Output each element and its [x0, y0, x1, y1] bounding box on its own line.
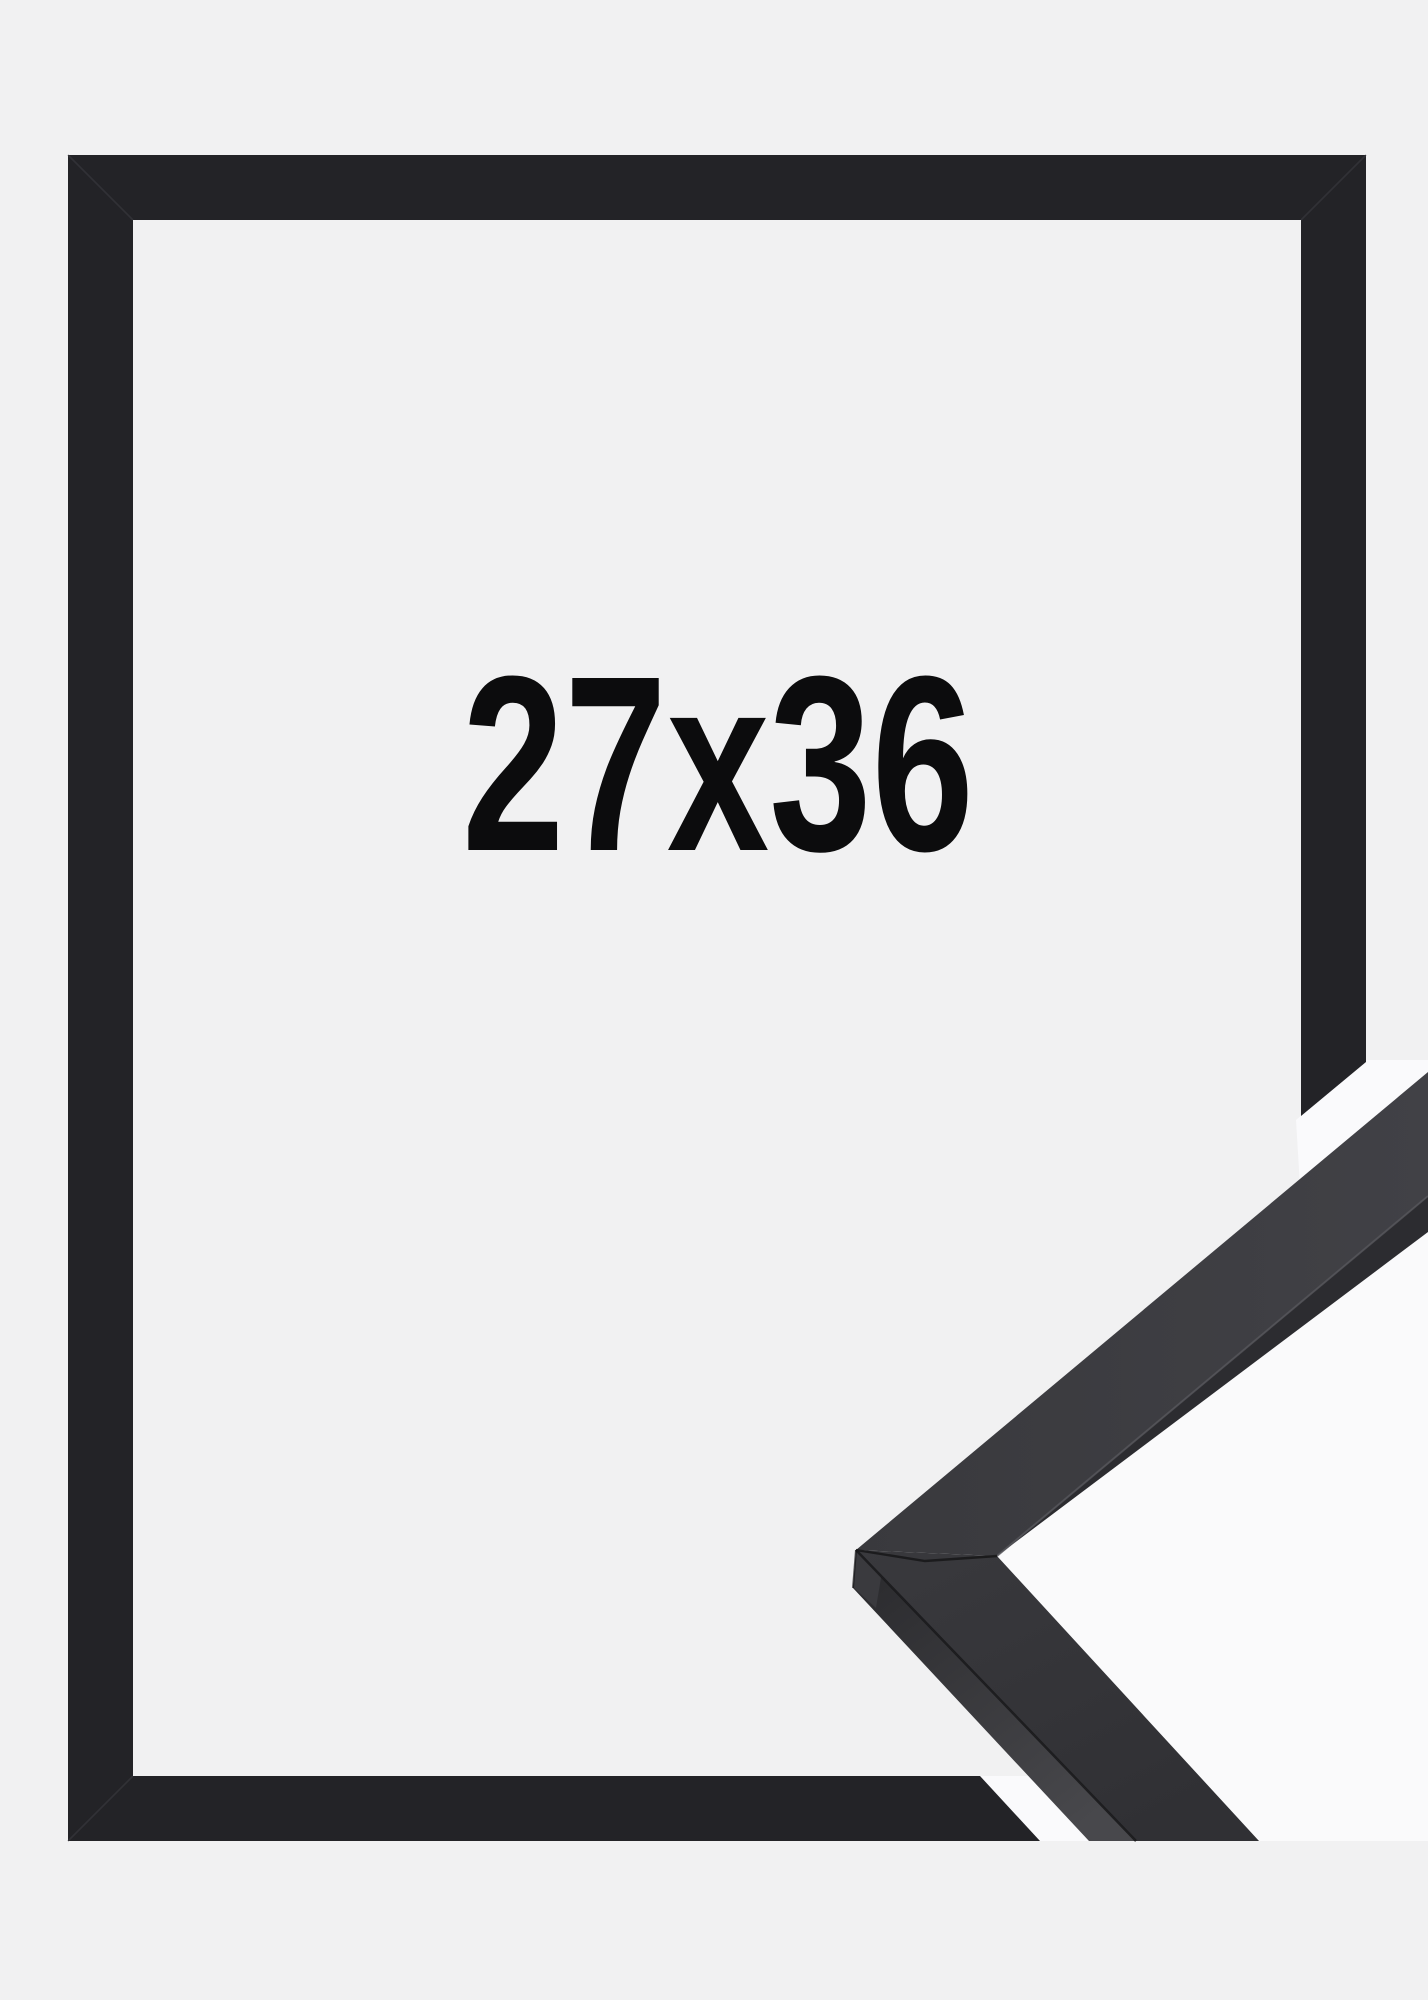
- size-label: 27x36: [462, 624, 974, 903]
- frame-right-bar: [1301, 155, 1366, 1116]
- frame-bottom-bar: [68, 1776, 1040, 1841]
- frame-product-image: 27x36: [0, 0, 1428, 2000]
- product-photo: 27x36: [0, 0, 1428, 2000]
- frame-top-bar: [68, 155, 1366, 220]
- frame-left-bar: [68, 155, 133, 1841]
